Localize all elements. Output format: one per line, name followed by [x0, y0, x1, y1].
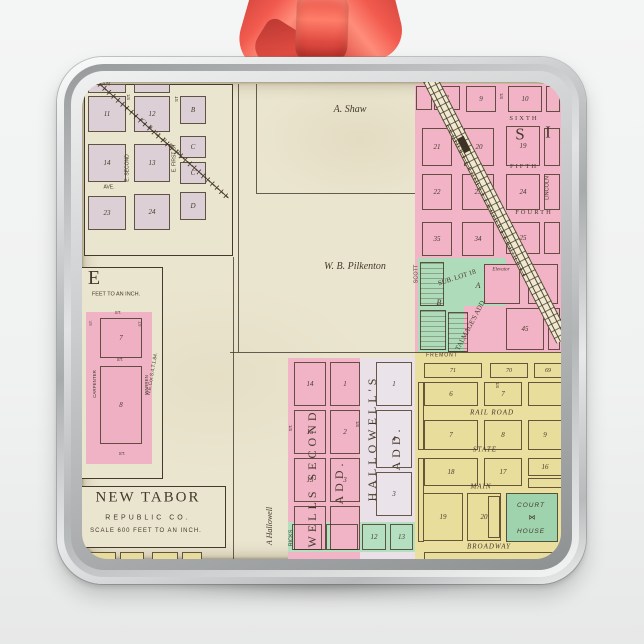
block-number: D — [190, 203, 195, 210]
wells-add-suffix: ADD. — [333, 460, 345, 505]
block-number: 69 — [545, 368, 551, 374]
block-number: 24 — [149, 209, 156, 216]
map-block-hallowell-add: 3 — [376, 472, 412, 516]
map-block-scandia-town: 24 — [506, 174, 540, 210]
block-number: 18 — [448, 469, 455, 476]
block-number: C — [191, 144, 196, 151]
street-carpenter: CARPENTER — [93, 370, 98, 398]
boundary-line — [256, 193, 415, 194]
hallowells-add-label: HALLOWELL'S — [366, 375, 378, 502]
block-number: B — [191, 107, 195, 114]
map-block-yellow-town: 7 — [424, 420, 478, 450]
map-block-inset2-town: 8 — [100, 366, 142, 444]
large-town-letter-s: S — [515, 126, 524, 143]
map-label: ST. — [117, 358, 124, 363]
map-block-yellow-town: 69 — [534, 363, 561, 378]
map-block-inset1-town — [134, 84, 170, 93]
map-block-scandia-town: 34 — [462, 222, 494, 256]
street-label-gan: GAN — [97, 83, 111, 88]
block-number: 1 — [343, 381, 347, 388]
map-block-yellow-town — [424, 552, 558, 559]
map-block-yellow-town — [418, 382, 424, 450]
block-number: 16 — [542, 464, 549, 471]
block-number: 7 — [501, 391, 505, 398]
block-number: 23 — [104, 210, 111, 217]
map-block-yellow-town: 7 — [484, 382, 522, 406]
block-number: 71 — [450, 368, 456, 374]
map-block-scandia-town: 45 — [506, 308, 544, 350]
map-block-inset2-town: 7 — [100, 318, 142, 358]
street-fremont: FREMONT — [426, 354, 458, 359]
block-number: 7 — [119, 335, 123, 342]
map-block-green-lots — [420, 310, 446, 350]
map-label: ST. — [115, 311, 122, 316]
street-rail-road: RAIL ROAD — [470, 410, 514, 417]
map-block-green-strip-lots: 12 — [362, 524, 386, 550]
boundary-line — [230, 352, 561, 353]
map-label: ST. — [289, 425, 294, 432]
map-block-wells-add: 14 — [294, 362, 326, 406]
block-number: 34 — [475, 236, 482, 243]
map-block-yellow-town: 6 — [424, 382, 478, 406]
block-number: 12 — [149, 111, 156, 118]
map-label: ST. — [119, 452, 126, 457]
hallowells-add-suffix: ADD. — [390, 426, 402, 471]
street-e-second: E. SECOND — [126, 154, 131, 182]
metal-ornament: 1112B1413CC2324D781411521331431213891021… — [57, 57, 586, 584]
map-block-wells-add: 2 — [330, 410, 360, 454]
map-block-inset1-town: D — [180, 192, 206, 220]
street-warren: WARREN — [145, 375, 150, 395]
boundary-line — [238, 84, 239, 352]
block-number: 13 — [398, 534, 405, 541]
street-ave: AVE. — [103, 186, 114, 191]
map-block-new-tabor-row — [90, 552, 116, 559]
map-block-inset1-town: 24 — [134, 194, 170, 230]
new-tabor-county: REPUBLIC CO. — [105, 515, 190, 522]
block-number: 7 — [449, 432, 453, 439]
map-label: ST. — [127, 94, 132, 101]
block-number: 13 — [149, 160, 156, 167]
block-number: 6 — [449, 391, 453, 398]
court-house-label-bottom: HOUSE — [517, 529, 545, 536]
block-number: 14 — [104, 160, 111, 167]
court-house-icon: ⋈ — [529, 515, 536, 522]
block-number: 11 — [104, 111, 110, 118]
product-photo: 1112B1413CC2324D781411521331431213891021… — [0, 0, 644, 644]
street-sixth: SIXTH — [509, 116, 538, 123]
inset2-scale-note: FEET TO AN INCH. — [92, 292, 140, 298]
block-number: 21 — [434, 144, 441, 151]
wells-second-add-label: WELLS SECOND — [306, 409, 318, 548]
map-block-scandia-town: 21 — [422, 128, 452, 166]
owner-w-b-pilkenton: W. B. Pilkenton — [324, 262, 386, 272]
block-number: 12 — [371, 534, 378, 541]
street-lincoln: LINCOLN — [545, 176, 551, 200]
street-scott: SCOTT — [414, 265, 420, 284]
block-number: 9 — [479, 96, 483, 103]
map-block-new-tabor-row — [182, 552, 202, 559]
owner-a-shaw: A. Shaw — [334, 105, 367, 115]
block-number: 10 — [522, 96, 529, 103]
court-house-label-top: COURT — [517, 503, 545, 510]
block-number: 19 — [520, 143, 527, 150]
map-block-yellow-town: 19 — [423, 493, 463, 541]
block-number: 19 — [440, 514, 447, 521]
block-number: 45 — [522, 326, 529, 333]
block-number: 70 — [506, 368, 512, 374]
map-block-green-strip-lots — [326, 524, 358, 550]
block-number: 35 — [434, 236, 441, 243]
map-block-hallowell-add: 1 — [376, 362, 412, 406]
block-number: 14 — [307, 381, 314, 388]
map-block-yellow-town: 9 — [528, 420, 561, 450]
block-number: 22 — [434, 189, 441, 196]
frame-bevel-inner: 1112B1413CC2324D781411521331431213891021… — [71, 71, 572, 570]
map-label: ST — [175, 96, 180, 102]
map-label: ST. — [500, 93, 505, 100]
boundary-line — [256, 84, 257, 193]
new-tabor-title: NEW TABOR — [96, 491, 201, 506]
map-block-wells-add: 1 — [330, 362, 360, 406]
map-block-yellow-town — [528, 382, 561, 406]
map-block-inset1-town: 23 — [88, 196, 126, 230]
map-label: B — [437, 299, 442, 307]
map-label: ST. — [356, 421, 361, 428]
map-block-yellow-town: 71 — [424, 363, 482, 378]
map-block-inset1-town: 13 — [134, 144, 170, 182]
new-tabor-scale: SCALE 600 FEET TO AN INCH. — [90, 528, 202, 534]
map-block-scandia-town — [546, 86, 560, 112]
block-number: 8 — [501, 432, 505, 439]
block-number: 1 — [392, 381, 396, 388]
map-label: A — [476, 282, 481, 290]
map-block-scandia-town: 10 — [508, 86, 542, 112]
block-number: 20 — [481, 514, 488, 521]
frame-bevel-outer: 1112B1413CC2324D781411521331431213891021… — [64, 64, 579, 577]
map-block-new-tabor-row — [120, 552, 144, 559]
map-block-yellow-town — [528, 478, 561, 488]
map-label: ST. — [496, 382, 501, 389]
street-fifth: FIFTH — [510, 164, 538, 171]
block-number: 24 — [520, 189, 527, 196]
map-block-new-tabor-row — [152, 552, 178, 559]
block-number: 2 — [343, 429, 347, 436]
map-block-scandia-town: 9 — [466, 86, 496, 112]
map-block-inset1-town: 14 — [88, 144, 126, 182]
block-number: 20 — [476, 144, 483, 151]
block-number: 17 — [500, 469, 507, 476]
block-number: 3 — [392, 491, 396, 498]
map-block-scandia-town: 22 — [422, 174, 452, 210]
block-number: 9 — [543, 432, 547, 439]
map-block-yellow-town — [488, 496, 500, 538]
map-block-inset1-town: B — [180, 96, 206, 124]
elevator-label: Elevator — [492, 268, 509, 273]
map-block-yellow-town — [418, 458, 424, 542]
boundary-line — [233, 257, 234, 559]
street-broadway: BROADWAY — [467, 544, 511, 551]
street-ricks: RICKS — [289, 530, 295, 547]
owner-a-hallowell: A Hallowell — [266, 507, 274, 545]
map-face: 1112B1413CC2324D781411521331431213891021… — [82, 82, 561, 559]
map-block-green-strip-lots: 13 — [390, 524, 413, 550]
street-state: STATE — [473, 447, 497, 454]
map-label: ST. — [89, 320, 93, 326]
street-fourth: FOURTH — [515, 210, 553, 217]
map-block-scandia-town: 35 — [422, 222, 452, 256]
block-number: 8 — [119, 402, 123, 409]
map-block-yellow-town: 16 — [528, 458, 561, 476]
inset2-title-letter: E — [88, 268, 100, 288]
map-block-scandia-town — [544, 222, 560, 254]
large-town-letter-i: I — [545, 124, 551, 141]
map-block-yellow-town: 70 — [490, 363, 528, 378]
street-main: MAIN — [470, 484, 491, 491]
ribbon-knot — [295, 0, 349, 63]
map-label: ST — [138, 321, 142, 326]
